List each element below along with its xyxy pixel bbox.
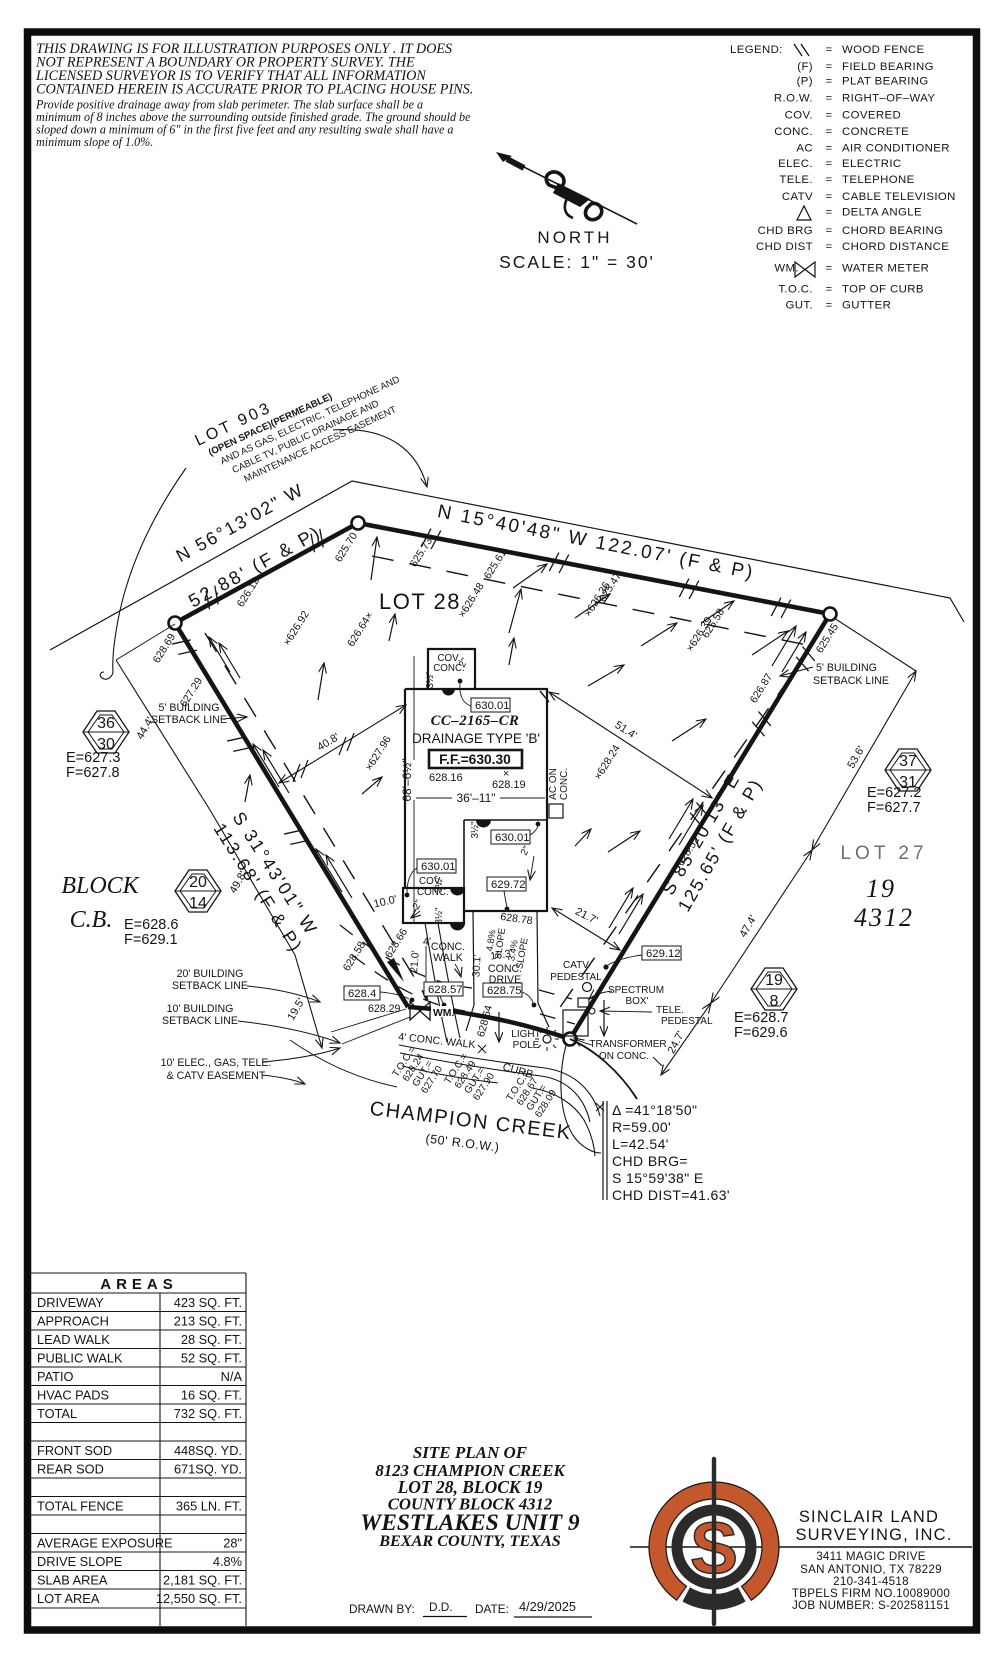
- svg-text:630.01: 630.01: [495, 832, 530, 844]
- svg-text:CONC.: CONC.: [559, 768, 570, 800]
- svg-text:4': 4': [423, 936, 431, 948]
- svg-text:SITE PLAN OF: SITE PLAN OF: [413, 1443, 528, 1462]
- svg-text:T.O.C.: T.O.C.: [778, 284, 813, 296]
- svg-text:C.B.: C.B.: [70, 907, 113, 933]
- svg-text:628.19: 628.19: [492, 779, 526, 791]
- svg-text:30.1': 30.1': [470, 954, 483, 977]
- svg-text:=: =: [825, 263, 832, 275]
- svg-text:=: =: [825, 158, 832, 170]
- svg-text:21.0': 21.0': [408, 950, 422, 974]
- svg-text:DATE:: DATE:: [475, 1602, 509, 1616]
- svg-text:20: 20: [189, 874, 207, 891]
- svg-text:WATER METER: WATER METER: [842, 263, 929, 275]
- svg-text:PEDESTAL: PEDESTAL: [550, 972, 602, 983]
- svg-text:=: =: [825, 143, 832, 155]
- svg-text:ELECTRIC: ELECTRIC: [842, 158, 902, 170]
- svg-text:19: 19: [866, 874, 896, 903]
- svg-text:2,181 SQ. FT.: 2,181 SQ. FT.: [163, 1573, 242, 1588]
- svg-text:SLAB AREA: SLAB AREA: [37, 1573, 108, 1588]
- svg-text:LOT 28: LOT 28: [379, 589, 461, 614]
- svg-text:=: =: [825, 76, 832, 88]
- svg-text:AC ON: AC ON: [548, 768, 559, 800]
- svg-text:LIGHT: LIGHT: [511, 1029, 540, 1040]
- svg-text:448SQ. YD.: 448SQ. YD.: [174, 1443, 242, 1458]
- svg-text:12,550 SQ. FT.: 12,550 SQ. FT.: [156, 1591, 242, 1606]
- svg-text:E=627.2: E=627.2: [867, 785, 921, 801]
- svg-text:E=628.7: E=628.7: [734, 1010, 788, 1026]
- svg-text:LOT 27: LOT 27: [840, 843, 927, 864]
- svg-text:L=42.54': L=42.54': [612, 1136, 669, 1152]
- svg-text:TOTAL: TOTAL: [37, 1406, 77, 1421]
- svg-text:28 SQ. FT.: 28 SQ. FT.: [181, 1332, 242, 1347]
- svg-text:=: =: [825, 174, 832, 186]
- svg-text:SETBACK LINE: SETBACK LINE: [172, 980, 248, 992]
- svg-text:COVERED: COVERED: [842, 110, 901, 122]
- svg-text:3½": 3½": [434, 907, 445, 925]
- svg-text:F.F.=630.30: F.F.=630.30: [439, 752, 511, 767]
- svg-text:WM.: WM.: [433, 1008, 454, 1019]
- svg-text:CATV: CATV: [563, 960, 589, 971]
- svg-text:CATV: CATV: [782, 191, 813, 203]
- svg-text:N/A: N/A: [221, 1369, 243, 1384]
- svg-text:AC: AC: [796, 143, 813, 155]
- svg-text:10' ELEC., GAS, TELE.: 10' ELEC., GAS, TELE.: [161, 1057, 272, 1069]
- svg-text:D.D.: D.D.: [429, 1600, 453, 1614]
- svg-text:LEGEND:: LEGEND:: [730, 44, 783, 56]
- svg-text:AIR CONDITIONER: AIR CONDITIONER: [842, 143, 950, 155]
- svg-text:WALK: WALK: [433, 952, 463, 964]
- svg-text:(P): (P): [797, 76, 813, 88]
- svg-text:TELE.: TELE.: [656, 1005, 684, 1016]
- svg-text:BLOCK: BLOCK: [61, 873, 140, 899]
- svg-text:PLAT BEARING: PLAT BEARING: [842, 76, 929, 88]
- svg-text:POLE: POLE: [513, 1040, 540, 1051]
- svg-text:36'–11": 36'–11": [456, 791, 495, 805]
- svg-text:=: =: [825, 110, 832, 122]
- svg-text:=: =: [825, 126, 832, 138]
- svg-text:CHD BRG=: CHD BRG=: [612, 1153, 688, 1169]
- svg-text:RIGHT–OF–WAY: RIGHT–OF–WAY: [842, 93, 935, 105]
- svg-text:10' BUILDING: 10' BUILDING: [167, 1003, 234, 1015]
- svg-text:5' BUILDING: 5' BUILDING: [816, 662, 877, 674]
- svg-text:19: 19: [765, 972, 783, 989]
- svg-text:16 SQ. FT.: 16 SQ. FT.: [181, 1388, 242, 1403]
- svg-text:F=627.8: F=627.8: [66, 765, 120, 781]
- svg-text:DELTA ANGLE: DELTA ANGLE: [842, 207, 922, 219]
- svg-text:HVAC PADS: HVAC PADS: [37, 1388, 109, 1403]
- svg-text:629.72: 629.72: [491, 879, 526, 891]
- svg-text:DRAWN BY:: DRAWN BY:: [349, 1602, 415, 1616]
- svg-text:3411 MAGIC DRIVE: 3411 MAGIC DRIVE: [816, 1550, 926, 1563]
- svg-text:LOT AREA: LOT AREA: [37, 1591, 100, 1606]
- svg-text:E=628.6: E=628.6: [124, 917, 178, 933]
- svg-text:SETBACK LINE: SETBACK LINE: [813, 675, 889, 687]
- svg-text:3½": 3½": [470, 821, 481, 839]
- svg-text:R.O.W.: R.O.W.: [774, 93, 813, 105]
- svg-text:SINCLAIR LAND: SINCLAIR LAND: [799, 1508, 939, 1526]
- svg-text:ON CONC.: ON CONC.: [599, 1051, 649, 1062]
- svg-text:GUTTER: GUTTER: [842, 300, 891, 312]
- svg-text:=: =: [825, 44, 832, 56]
- svg-text:CONTAINED HEREIN IS ACCURATE P: CONTAINED HEREIN IS ACCURATE PRIOR TO PL…: [36, 82, 473, 98]
- svg-text:628.4: 628.4: [348, 988, 376, 1000]
- svg-text:CHD BRG: CHD BRG: [758, 225, 813, 237]
- svg-text:F=629.6: F=629.6: [734, 1025, 788, 1041]
- svg-text:=: =: [825, 61, 832, 73]
- svg-text:4.8%: 4.8%: [213, 1554, 242, 1569]
- svg-text:630.01: 630.01: [475, 700, 510, 712]
- svg-text:TOTAL FENCE: TOTAL FENCE: [37, 1499, 124, 1514]
- svg-text:4/29/2025: 4/29/2025: [519, 1599, 576, 1614]
- svg-text:28": 28": [223, 1536, 242, 1551]
- svg-text:628.57: 628.57: [428, 984, 463, 996]
- svg-text:=: =: [825, 300, 832, 312]
- svg-text:DRIVEWAY: DRIVEWAY: [37, 1295, 104, 1310]
- svg-text:JOB NUMBER: S-202581151: JOB NUMBER: S-202581151: [792, 1599, 950, 1612]
- svg-text:BOX': BOX': [625, 996, 648, 1007]
- svg-text:14: 14: [189, 895, 207, 912]
- svg-text:=: =: [825, 225, 832, 237]
- svg-text:628.29: 628.29: [368, 1003, 401, 1015]
- svg-text:CABLE TELEVISION: CABLE TELEVISION: [842, 191, 956, 203]
- svg-text:E=627.3: E=627.3: [66, 750, 120, 766]
- svg-text:629.12: 629.12: [646, 948, 681, 960]
- svg-text:CHD DIST: CHD DIST: [756, 241, 813, 253]
- svg-text:BEXAR COUNTY, TEXAS: BEXAR COUNTY, TEXAS: [378, 1532, 561, 1550]
- svg-text:3½": 3½": [425, 671, 436, 689]
- svg-text:=: =: [825, 191, 832, 203]
- svg-text:36: 36: [97, 715, 115, 732]
- svg-text:PEDESTAL: PEDESTAL: [661, 1016, 713, 1027]
- svg-text:F=629.1: F=629.1: [124, 932, 178, 948]
- svg-text:628.16: 628.16: [429, 772, 463, 784]
- svg-text:PUBLIC WALK: PUBLIC WALK: [37, 1351, 123, 1366]
- svg-text:COV.: COV.: [785, 110, 813, 122]
- svg-text:4312: 4312: [854, 903, 914, 932]
- svg-text:52 SQ. FT.: 52 SQ. FT.: [181, 1351, 242, 1366]
- svg-text:S 15°59'38" E: S 15°59'38" E: [612, 1170, 704, 1186]
- svg-text:REAR SOD: REAR SOD: [37, 1462, 104, 1477]
- svg-text:AREAS: AREAS: [100, 1276, 178, 1293]
- svg-text:CONC.: CONC.: [774, 126, 813, 138]
- svg-text:CHD DIST=41.63': CHD DIST=41.63': [612, 1187, 730, 1203]
- svg-text:=: =: [825, 93, 832, 105]
- svg-text:SETBACK LINE: SETBACK LINE: [151, 714, 227, 726]
- svg-text:DRIVE SLOPE: DRIVE SLOPE: [37, 1554, 122, 1569]
- svg-text:=: =: [825, 241, 832, 253]
- svg-text:& CATV EASEMENT: & CATV EASEMENT: [167, 1070, 266, 1082]
- svg-text:TELE.: TELE.: [779, 174, 813, 186]
- svg-text:R=59.00': R=59.00': [612, 1119, 671, 1135]
- svg-text:5' BUILDING: 5' BUILDING: [159, 702, 220, 714]
- svg-text:LEAD WALK: LEAD WALK: [37, 1332, 110, 1347]
- svg-text:SPECTRUM: SPECTRUM: [608, 985, 664, 996]
- svg-text:ELEC.: ELEC.: [778, 158, 813, 170]
- svg-text:CHORD BEARING: CHORD BEARING: [842, 225, 943, 237]
- svg-text:F=627.7: F=627.7: [867, 800, 921, 816]
- svg-text:630.01: 630.01: [421, 861, 456, 873]
- svg-text:TOP OF CURB: TOP OF CURB: [842, 284, 924, 296]
- svg-text:APPROACH: APPROACH: [37, 1314, 109, 1329]
- svg-text:423 SQ. FT.: 423 SQ. FT.: [174, 1295, 242, 1310]
- svg-text:CHORD DISTANCE: CHORD DISTANCE: [842, 241, 949, 253]
- svg-text:CONCRETE: CONCRETE: [842, 126, 909, 138]
- svg-text:FIELD BEARING: FIELD BEARING: [842, 61, 934, 73]
- svg-text:3½": 3½": [434, 875, 445, 893]
- svg-text:minimum slope of 1.0%.: minimum slope of 1.0%.: [36, 135, 153, 149]
- svg-text:37: 37: [899, 753, 917, 770]
- svg-text:FRONT SOD: FRONT SOD: [37, 1443, 112, 1458]
- svg-text:×: ×: [503, 768, 509, 780]
- svg-text:Δ =41°18'50": Δ =41°18'50": [612, 1102, 697, 1118]
- svg-text:=: =: [825, 207, 832, 219]
- svg-text:GUT.: GUT.: [785, 300, 813, 312]
- svg-text:213 SQ. FT.: 213 SQ. FT.: [174, 1314, 242, 1329]
- svg-text:NORTH: NORTH: [537, 228, 612, 247]
- svg-text:CC–2165–CR: CC–2165–CR: [431, 713, 520, 729]
- svg-text:68'–6½": 68'–6½": [400, 758, 414, 801]
- svg-text:TRANSFORMER: TRANSFORMER: [589, 1039, 666, 1050]
- svg-text:8: 8: [770, 993, 779, 1010]
- svg-text:AVERAGE EXPOSURE: AVERAGE EXPOSURE: [37, 1536, 173, 1551]
- svg-text:(F): (F): [797, 61, 813, 73]
- svg-text:SETBACK LINE: SETBACK LINE: [162, 1015, 238, 1027]
- svg-text:SURVEYING, INC.: SURVEYING, INC.: [795, 1526, 952, 1544]
- svg-text:671SQ. YD.: 671SQ. YD.: [174, 1462, 242, 1477]
- svg-text:20' BUILDING: 20' BUILDING: [177, 968, 244, 980]
- svg-text:DRAINAGE TYPE 'B': DRAINAGE TYPE 'B': [412, 731, 540, 746]
- svg-text:SCALE: 1" = 30': SCALE: 1" = 30': [499, 252, 655, 272]
- svg-text:732 SQ. FT.: 732 SQ. FT.: [174, 1406, 242, 1421]
- svg-text:PATIO: PATIO: [37, 1369, 74, 1384]
- svg-text:WOOD FENCE: WOOD FENCE: [842, 44, 924, 56]
- svg-text:TELEPHONE: TELEPHONE: [842, 174, 915, 186]
- svg-text:628.75: 628.75: [487, 985, 522, 997]
- svg-text:365 LN. FT.: 365 LN. FT.: [176, 1499, 242, 1514]
- svg-text:=: =: [825, 284, 832, 296]
